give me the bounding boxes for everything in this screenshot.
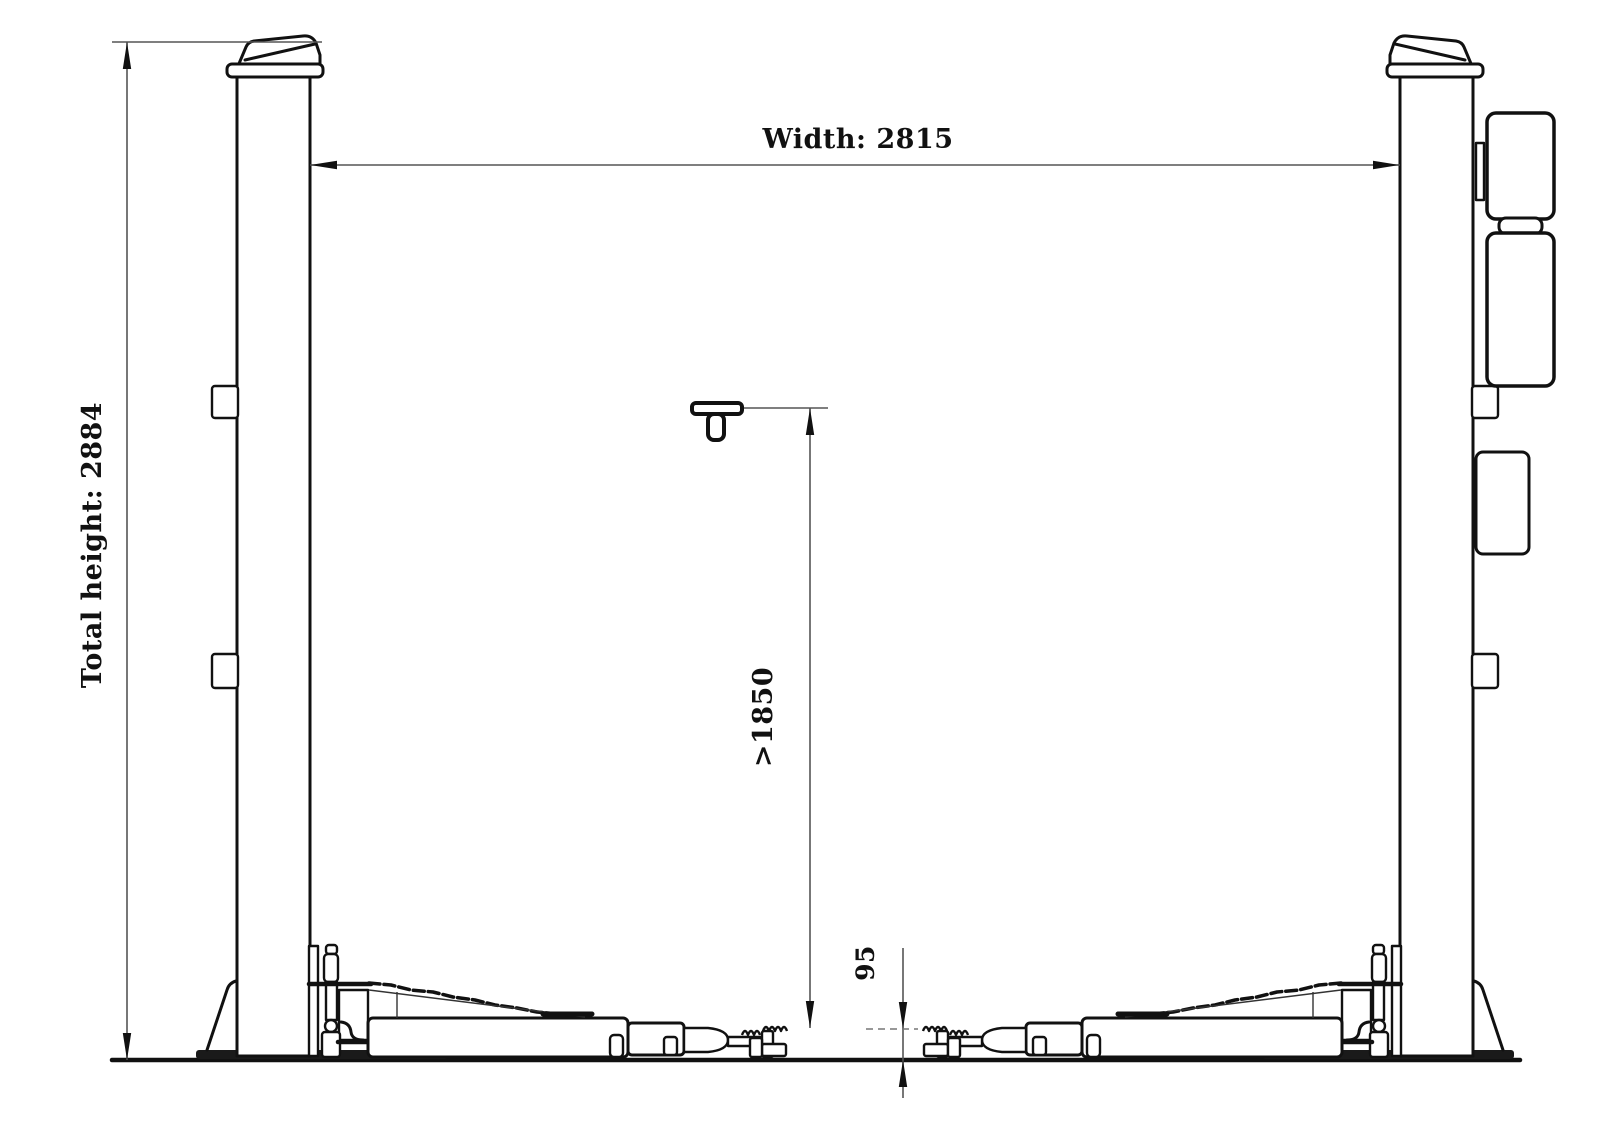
lift-height-label: >1850 [748, 667, 779, 767]
mounting-tab-upper [212, 386, 238, 418]
lift-arm-left [309, 945, 787, 1057]
total-height-label: Total height: 2884 [77, 402, 108, 688]
hydraulic-tank [1487, 233, 1554, 386]
equalizing-chain [369, 983, 575, 1016]
arm-slot-outer [664, 1037, 677, 1055]
arm-lock-cylinder [324, 954, 338, 982]
arm-end-section [684, 1028, 728, 1052]
arrow-right-icon [1373, 161, 1400, 169]
left-column [196, 36, 448, 1059]
arrow-up-icon [899, 1060, 907, 1087]
width-label: Width: 2815 [761, 124, 953, 155]
arm-mount-bracket [339, 990, 368, 1040]
arrow-up-icon [123, 42, 131, 69]
dimension-pad-height: 95 [851, 945, 918, 1098]
dimension-width: Width: 2815 [310, 124, 1400, 169]
lift-arm-right [923, 945, 1401, 1057]
arm-lock-cap [326, 945, 337, 954]
arrow-up-icon [806, 408, 814, 435]
arm-main-section [368, 1018, 628, 1057]
lift-front-view-diagram: Total height: 2884 Width: 2815 >1850 95 [0, 0, 1600, 1147]
dimension-lift-height: >1850 [692, 403, 828, 1028]
power-unit [1476, 113, 1554, 554]
pad-contact-symbol-stem [708, 414, 724, 440]
pad-block [750, 1038, 762, 1057]
pivot-pin [325, 1020, 337, 1032]
pad-foot [762, 1044, 786, 1056]
arm-slot-inner [610, 1035, 623, 1057]
base-gusset [207, 981, 236, 1050]
pad-height-label: 95 [851, 945, 880, 981]
arrow-left-icon [310, 161, 337, 169]
motor-box [1487, 113, 1554, 219]
carriage-rail [309, 946, 318, 1056]
arm-pivot-shaft [326, 982, 337, 1020]
junction-box [1476, 452, 1529, 554]
carriage-foot [322, 1032, 340, 1057]
mount-bracket [1476, 143, 1484, 200]
arrow-down-icon [899, 1002, 907, 1029]
mounting-tab-lower [212, 654, 238, 688]
arrow-down-icon [123, 1033, 131, 1060]
arrow-down-icon [806, 1001, 814, 1028]
two-post-lift-drawing: Total height: 2884 Width: 2815 >1850 95 [0, 0, 1600, 1147]
column-body [237, 77, 310, 1056]
column-cap-band [227, 64, 323, 77]
